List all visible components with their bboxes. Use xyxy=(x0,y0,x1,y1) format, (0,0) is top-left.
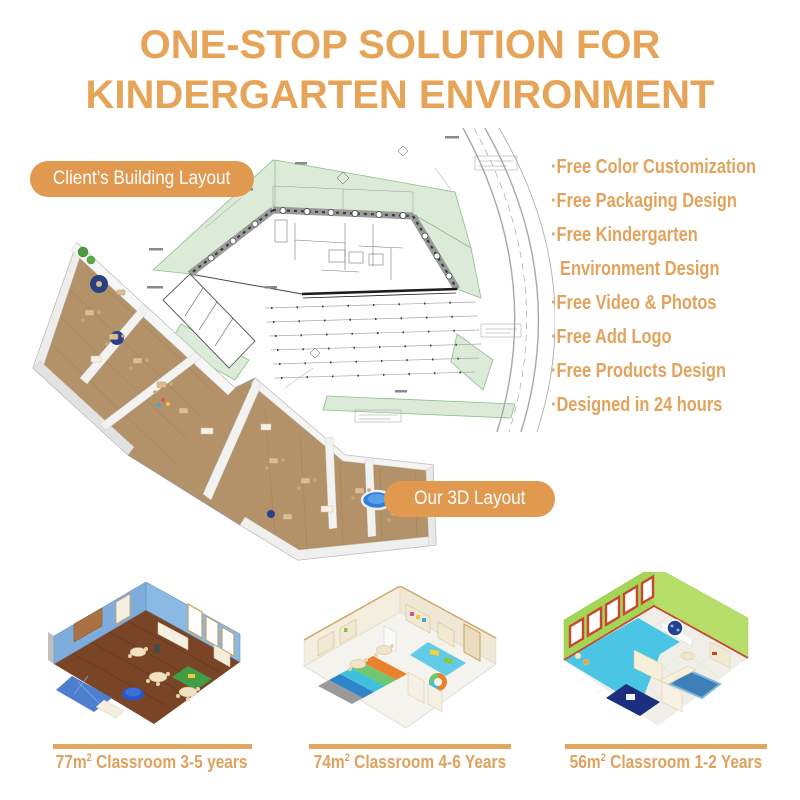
classroom-render-77m xyxy=(38,582,258,732)
client-layout-badge-label: Client’s Building Layout xyxy=(53,168,230,190)
title-line-1: ONE-STOP SOLUTION FOR xyxy=(0,20,800,70)
page-title: ONE-STOP SOLUTION FOR KINDERGARTEN ENVIR… xyxy=(0,20,800,120)
features-list: ·Free Color Customization ·Free Packagin… xyxy=(551,150,799,422)
feature-item: ·Free Color Customization xyxy=(551,150,799,184)
caption-divider-2 xyxy=(309,744,511,749)
poster-canvas: ONE-STOP SOLUTION FOR KINDERGARTEN ENVIR… xyxy=(0,0,800,800)
classroom-caption-3: 56m2 Classroom 1-2 Years xyxy=(546,752,786,773)
our-3d-layout-figure xyxy=(25,228,445,568)
caption-divider-3 xyxy=(565,744,767,749)
feature-item: ·Designed in 24 hours xyxy=(551,388,799,422)
feature-item: ·Free Kindergarten xyxy=(551,218,799,252)
our-3d-layout-badge-label: Our 3D Layout xyxy=(414,488,525,510)
classroom-render-56m xyxy=(542,572,767,737)
feature-item: ·Free Add Logo xyxy=(551,320,799,354)
feature-item: ·Free Video & Photos xyxy=(551,286,799,320)
feature-item: ·Free Products Design xyxy=(551,354,799,388)
caption-divider-1 xyxy=(53,744,252,749)
feature-item-continuation: Environment Design xyxy=(551,252,799,286)
classroom-caption-1: 77m2 Classroom 3-5 years xyxy=(32,752,272,773)
classroom-caption-2: 74m2 Classroom 4-6 Years xyxy=(290,752,530,773)
classroom-render-74m xyxy=(288,586,513,736)
feature-item: ·Free Packaging Design xyxy=(551,184,799,218)
client-layout-badge: Client’s Building Layout xyxy=(30,161,254,197)
title-line-2: KINDERGARTEN ENVIRONMENT xyxy=(0,70,800,120)
our-3d-layout-badge: Our 3D Layout xyxy=(384,481,555,517)
